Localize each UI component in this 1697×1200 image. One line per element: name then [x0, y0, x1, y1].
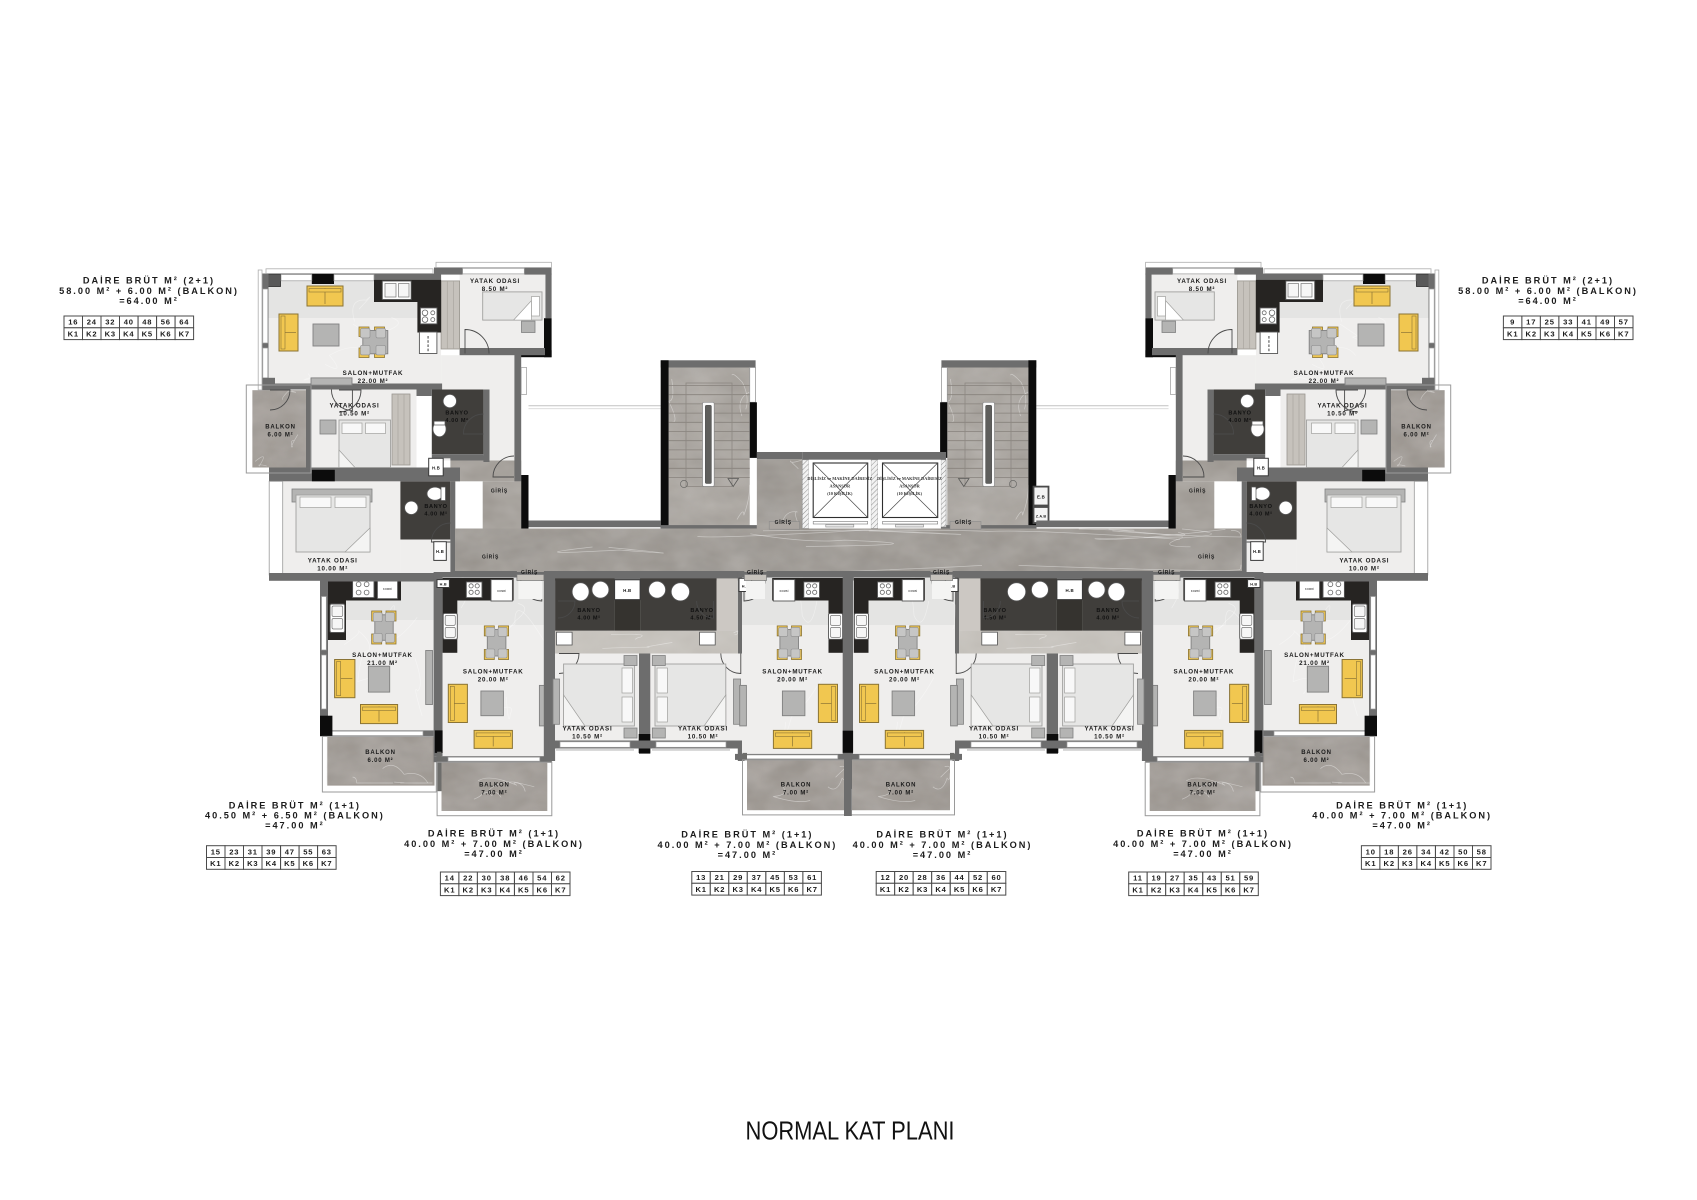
svg-text:4.00 M²: 4.00 M²	[424, 511, 447, 518]
svg-text:K2: K2	[1384, 859, 1395, 868]
svg-text:K2: K2	[714, 885, 725, 894]
svg-text:K5: K5	[284, 859, 295, 868]
svg-text:KOMBİ: KOMBİ	[1191, 590, 1200, 593]
svg-text:39: 39	[266, 847, 276, 856]
svg-text:SALON+MUTFAK: SALON+MUTFAK	[463, 669, 524, 676]
svg-text:NORMAL KAT PLANI: NORMAL KAT PLANI	[746, 1118, 955, 1146]
svg-text:40: 40	[124, 318, 134, 327]
svg-text:6.00 M²: 6.00 M²	[368, 757, 394, 764]
svg-text:10.50 M²: 10.50 M²	[339, 411, 370, 418]
svg-text:21.00 M²: 21.00 M²	[1299, 660, 1330, 667]
svg-text:GİRİŞ: GİRİŞ	[775, 519, 792, 526]
svg-text:58.00 M² + 6.00 M² (BALKON): 58.00 M² + 6.00 M² (BALKON)	[59, 286, 239, 296]
svg-text:=47.00 M²: =47.00 M²	[1173, 849, 1233, 859]
svg-text:K2: K2	[463, 885, 474, 894]
svg-text:36: 36	[936, 873, 946, 882]
svg-text:K1: K1	[444, 885, 455, 894]
svg-text:10.50 M²: 10.50 M²	[1094, 734, 1125, 741]
svg-text:DAİRE BRÜT M² (1+1): DAİRE BRÜT M² (1+1)	[1137, 829, 1269, 839]
svg-text:8.50 M²: 8.50 M²	[482, 286, 509, 293]
svg-text:32: 32	[105, 318, 115, 327]
svg-text:52: 52	[973, 873, 983, 882]
svg-text:DAİRE BRÜT M² (1+1): DAİRE BRÜT M² (1+1)	[876, 830, 1008, 840]
svg-text:37: 37	[752, 873, 762, 882]
svg-text:K5: K5	[954, 885, 965, 894]
svg-text:GİRİŞ: GİRİŞ	[747, 569, 764, 576]
svg-text:4.00 M²: 4.00 M²	[1249, 511, 1272, 518]
svg-text:BANYO: BANYO	[1228, 411, 1251, 417]
svg-text:K1: K1	[68, 329, 79, 338]
svg-text:26: 26	[1403, 847, 1413, 856]
svg-text:7.00 M²: 7.00 M²	[783, 790, 809, 797]
svg-text:KOMBİ: KOMBİ	[1305, 588, 1314, 591]
svg-text:23: 23	[229, 847, 239, 856]
svg-text:ASANSÖR: ASANSÖR	[830, 484, 851, 489]
svg-text:20: 20	[899, 873, 909, 882]
svg-text:10.00 M²: 10.00 M²	[1349, 566, 1380, 573]
svg-text:51: 51	[1225, 874, 1235, 883]
svg-text:47: 47	[285, 847, 295, 856]
svg-text:57: 57	[1619, 318, 1629, 327]
svg-text:BALKON: BALKON	[265, 425, 295, 431]
svg-text:K2: K2	[86, 329, 97, 338]
svg-text:16: 16	[68, 318, 78, 327]
svg-text:63: 63	[322, 847, 332, 856]
svg-text:BALKON: BALKON	[1301, 750, 1331, 756]
svg-text:K7: K7	[321, 859, 332, 868]
svg-text:K3: K3	[732, 885, 743, 894]
svg-text:18: 18	[1384, 847, 1394, 856]
svg-text:SALON+MUTFAK: SALON+MUTFAK	[352, 652, 413, 659]
svg-text:GİRİŞ: GİRİŞ	[933, 569, 950, 576]
svg-text:K5: K5	[1439, 859, 1450, 868]
svg-text:H.B: H.B	[1253, 549, 1261, 554]
svg-text:K4: K4	[266, 859, 277, 868]
svg-text:GİRİŞ: GİRİŞ	[482, 554, 499, 561]
svg-text:K2: K2	[898, 885, 909, 894]
svg-text:GİRİŞ: GİRİŞ	[1158, 569, 1175, 576]
svg-text:DAİRE BRÜT M² (2+1): DAİRE BRÜT M² (2+1)	[83, 276, 215, 286]
svg-text:K6: K6	[537, 885, 548, 894]
svg-text:K1: K1	[210, 859, 221, 868]
svg-text:KOMBİ: KOMBİ	[497, 590, 506, 593]
svg-text:K2: K2	[1526, 329, 1537, 338]
svg-text:=47.00 M²: =47.00 M²	[265, 821, 325, 831]
svg-text:20.00 M²: 20.00 M²	[1188, 677, 1219, 684]
svg-text:=47.00 M²: =47.00 M²	[718, 850, 778, 860]
svg-text:SALON+MUTFAK: SALON+MUTFAK	[343, 370, 404, 377]
svg-text:14: 14	[445, 874, 455, 883]
svg-text:DAİRE BRÜT M² (2+1): DAİRE BRÜT M² (2+1)	[1482, 276, 1614, 286]
svg-text:54: 54	[537, 874, 547, 883]
svg-text:8.50 M²: 8.50 M²	[1189, 286, 1216, 293]
svg-text:K4: K4	[123, 329, 134, 338]
svg-text:31: 31	[248, 847, 258, 856]
svg-text:K3: K3	[247, 859, 258, 868]
svg-text:H.B: H.B	[623, 588, 631, 593]
svg-text:60: 60	[991, 873, 1001, 882]
svg-text:YATAK ODASI: YATAK ODASI	[969, 726, 1019, 733]
svg-text:K3: K3	[105, 329, 116, 338]
svg-text:BANYO: BANYO	[424, 504, 447, 510]
svg-text:K3: K3	[481, 885, 492, 894]
svg-text:SALON+MUTFAK: SALON+MUTFAK	[1284, 652, 1345, 659]
svg-text:KOMBİ: KOMBİ	[383, 588, 392, 591]
svg-text:35: 35	[1188, 874, 1198, 883]
svg-text:46: 46	[519, 874, 529, 883]
svg-text:20.00 M²: 20.00 M²	[889, 677, 920, 684]
svg-text:K7: K7	[1476, 859, 1487, 868]
svg-text:6.00 M²: 6.00 M²	[1404, 432, 1430, 439]
svg-text:K4: K4	[1188, 885, 1199, 894]
svg-text:(10 KİŞİLİK): (10 KİŞİLİK)	[827, 491, 853, 496]
svg-text:41: 41	[1582, 318, 1592, 327]
svg-text:9: 9	[1510, 318, 1515, 327]
svg-text:K7: K7	[806, 885, 817, 894]
svg-text:34: 34	[1421, 847, 1431, 856]
svg-text:24: 24	[87, 318, 97, 327]
svg-text:GİRİŞ: GİRİŞ	[521, 569, 538, 576]
svg-text:17: 17	[1526, 318, 1536, 327]
svg-text:64: 64	[179, 318, 189, 327]
svg-text:27: 27	[1170, 874, 1180, 883]
svg-text:50: 50	[1458, 847, 1468, 856]
svg-text:=64.00 M²: =64.00 M²	[119, 296, 179, 306]
svg-text:10.00 M²: 10.00 M²	[317, 566, 348, 573]
svg-text:K4: K4	[1421, 859, 1432, 868]
svg-text:25: 25	[1545, 318, 1555, 327]
svg-text:BALKON: BALKON	[781, 783, 811, 789]
svg-text:40.00 M² + 7.00 M² (BALKON): 40.00 M² + 7.00 M² (BALKON)	[1312, 811, 1492, 821]
svg-text:K7: K7	[179, 329, 190, 338]
svg-text:GİRİŞ: GİRİŞ	[491, 488, 508, 495]
svg-text:10.50 M²: 10.50 M²	[688, 734, 719, 741]
svg-text:BANYO: BANYO	[577, 608, 600, 614]
svg-text:29: 29	[733, 873, 743, 882]
svg-text:K2: K2	[1151, 885, 1162, 894]
svg-text:7.00 M²: 7.00 M²	[481, 790, 507, 797]
svg-text:7.00 M²: 7.00 M²	[1190, 790, 1216, 797]
svg-text:K4: K4	[935, 885, 946, 894]
svg-text:K6: K6	[1458, 859, 1469, 868]
svg-text:ASANSÖR: ASANSÖR	[899, 484, 920, 489]
svg-text:K1: K1	[880, 885, 891, 894]
svg-text:KOMBİ: KOMBİ	[780, 590, 789, 593]
svg-text:K3: K3	[917, 885, 928, 894]
svg-text:13: 13	[696, 873, 706, 882]
svg-text:K3: K3	[1402, 859, 1413, 868]
svg-text:YATAK ODASI: YATAK ODASI	[470, 278, 520, 285]
svg-text:K6: K6	[788, 885, 799, 894]
svg-text:22: 22	[463, 874, 473, 883]
svg-text:10.50 M²: 10.50 M²	[1327, 411, 1358, 418]
svg-text:GİRİŞ: GİRİŞ	[1198, 554, 1215, 561]
svg-text:=47.00 M²: =47.00 M²	[913, 850, 973, 860]
svg-text:DAİRE BRÜT M² (1+1): DAİRE BRÜT M² (1+1)	[428, 829, 560, 839]
svg-text:K1: K1	[1507, 329, 1518, 338]
svg-text:YATAK ODASI: YATAK ODASI	[1339, 558, 1389, 565]
svg-text:40.00 M² + 7.00 M² (BALKON): 40.00 M² + 7.00 M² (BALKON)	[404, 839, 584, 849]
svg-text:DAİRE BRÜT M² (1+1): DAİRE BRÜT M² (1+1)	[681, 830, 813, 840]
svg-text:H.B: H.B	[440, 582, 447, 586]
svg-text:40.00 M² + 7.00 M² (BALKON): 40.00 M² + 7.00 M² (BALKON)	[1113, 839, 1293, 849]
svg-text:7.00 M²: 7.00 M²	[888, 790, 914, 797]
svg-text:SALON+MUTFAK: SALON+MUTFAK	[1173, 669, 1234, 676]
svg-text:42: 42	[1440, 847, 1450, 856]
svg-text:(10 KİŞİLİK): (10 KİŞİLİK)	[897, 491, 923, 496]
svg-text:K7: K7	[991, 885, 1002, 894]
svg-text:30: 30	[482, 874, 492, 883]
svg-text:YATAK ODASI: YATAK ODASI	[1085, 726, 1135, 733]
svg-text:BALKON: BALKON	[1187, 783, 1217, 789]
svg-text:38: 38	[500, 874, 510, 883]
svg-text:K3: K3	[1169, 885, 1180, 894]
svg-text:45: 45	[770, 873, 780, 882]
svg-text:10: 10	[1366, 847, 1376, 856]
svg-text:=64.00 M²: =64.00 M²	[1518, 296, 1578, 306]
svg-text:59: 59	[1244, 874, 1254, 883]
svg-text:22.00 M²: 22.00 M²	[358, 378, 389, 385]
svg-text:YATAK ODASI: YATAK ODASI	[1318, 403, 1368, 410]
svg-text:H.B: H.B	[1257, 466, 1265, 471]
svg-text:K3: K3	[1544, 329, 1555, 338]
svg-text:K5: K5	[769, 885, 780, 894]
svg-text:K4: K4	[751, 885, 762, 894]
svg-text:20.00 M²: 20.00 M²	[478, 677, 509, 684]
svg-text:SALON+MUTFAK: SALON+MUTFAK	[1294, 370, 1355, 377]
svg-text:BALKON: BALKON	[886, 783, 916, 789]
svg-text:K1: K1	[1132, 885, 1143, 894]
svg-text:20.00 M²: 20.00 M²	[777, 677, 808, 684]
svg-text:YATAK ODASI: YATAK ODASI	[1177, 278, 1227, 285]
svg-text:K5: K5	[142, 329, 153, 338]
svg-text:4.00 M²: 4.00 M²	[577, 615, 600, 622]
svg-text:H.B: H.B	[1250, 582, 1257, 586]
svg-text:DAİRE BRÜT M² (1+1): DAİRE BRÜT M² (1+1)	[229, 801, 361, 811]
svg-text:48: 48	[142, 318, 152, 327]
svg-text:BANYO: BANYO	[1249, 504, 1272, 510]
svg-text:GİRİŞ: GİRİŞ	[955, 519, 972, 526]
svg-text:SALON+MUTFAK: SALON+MUTFAK	[874, 669, 935, 676]
svg-text:40.00 M² + 7.00 M² (BALKON): 40.00 M² + 7.00 M² (BALKON)	[853, 840, 1033, 850]
svg-text:BALKON: BALKON	[365, 750, 395, 756]
svg-text:YATAK ODASI: YATAK ODASI	[330, 403, 380, 410]
svg-text:K1: K1	[1365, 859, 1376, 868]
svg-text:40.00 M² + 7.00 M² (BALKON): 40.00 M² + 7.00 M² (BALKON)	[657, 840, 837, 850]
svg-text:10.50 M²: 10.50 M²	[979, 734, 1010, 741]
svg-text:DİŞLİSİZ ve MAKİNE DAİRESİZ: DİŞLİSİZ ve MAKİNE DAİRESİZ	[877, 476, 942, 481]
svg-text:K5: K5	[1581, 329, 1592, 338]
svg-text:BANYO: BANYO	[1096, 608, 1119, 614]
svg-text:28: 28	[917, 873, 927, 882]
svg-text:DAİRE BRÜT M² (1+1): DAİRE BRÜT M² (1+1)	[1336, 801, 1468, 811]
svg-text:K5: K5	[518, 885, 529, 894]
svg-text:K1: K1	[695, 885, 706, 894]
svg-text:33: 33	[1563, 318, 1573, 327]
svg-text:22.00 M²: 22.00 M²	[1309, 378, 1340, 385]
svg-text:12: 12	[880, 873, 890, 882]
svg-text:H.B: H.B	[436, 549, 444, 554]
svg-text:56: 56	[161, 318, 171, 327]
svg-text:SALON+MUTFAK: SALON+MUTFAK	[762, 669, 823, 676]
svg-text:10.50 M²: 10.50 M²	[572, 734, 603, 741]
svg-text:44: 44	[954, 873, 964, 882]
svg-text:K6: K6	[303, 859, 314, 868]
svg-text:H.B: H.B	[432, 466, 440, 471]
svg-text:62: 62	[556, 874, 566, 883]
svg-text:K5: K5	[1206, 885, 1217, 894]
svg-text:BALKON: BALKON	[479, 783, 509, 789]
svg-text:K7: K7	[1243, 885, 1254, 894]
svg-text:40.50 M² + 6.50 M² (BALKON): 40.50 M² + 6.50 M² (BALKON)	[205, 811, 385, 821]
svg-text:6.00 M²: 6.00 M²	[268, 432, 294, 439]
svg-text:49: 49	[1600, 318, 1610, 327]
svg-text:21: 21	[715, 873, 725, 882]
svg-text:K4: K4	[1563, 329, 1574, 338]
svg-text:K2: K2	[229, 859, 240, 868]
svg-text:55: 55	[303, 847, 313, 856]
svg-text:E.B: E.B	[1037, 495, 1045, 500]
svg-text:YATAK ODASI: YATAK ODASI	[563, 726, 613, 733]
svg-text:K6: K6	[1600, 329, 1611, 338]
svg-text:K6: K6	[160, 329, 171, 338]
svg-text:YATAK ODASI: YATAK ODASI	[678, 726, 728, 733]
svg-text:4.00 M²: 4.00 M²	[1096, 615, 1119, 622]
svg-text:KOMBİ: KOMBİ	[908, 590, 917, 593]
svg-text:Z.A.B: Z.A.B	[1036, 515, 1047, 519]
svg-text:6.00 M²: 6.00 M²	[1304, 757, 1330, 764]
svg-text:K4: K4	[500, 885, 511, 894]
svg-text:BALKON: BALKON	[1401, 425, 1431, 431]
svg-text:11: 11	[1133, 874, 1143, 883]
svg-text:43: 43	[1207, 874, 1217, 883]
svg-text:21.00 M²: 21.00 M²	[367, 660, 398, 667]
svg-text:GİRİŞ: GİRİŞ	[1189, 488, 1206, 495]
svg-text:58: 58	[1477, 847, 1487, 856]
svg-text:K6: K6	[1225, 885, 1236, 894]
svg-text:K6: K6	[972, 885, 983, 894]
svg-text:=47.00 M²: =47.00 M²	[464, 849, 524, 859]
svg-text:4.00 M²: 4.00 M²	[1228, 417, 1251, 424]
svg-text:K7: K7	[555, 885, 566, 894]
svg-text:58.00 M² + 6.00 M² (BALKON): 58.00 M² + 6.00 M² (BALKON)	[1458, 286, 1638, 296]
svg-text:61: 61	[807, 873, 817, 882]
svg-text:H.B: H.B	[1065, 588, 1073, 593]
svg-text:=47.00 M²: =47.00 M²	[1372, 821, 1432, 831]
svg-text:BANYO: BANYO	[445, 411, 468, 417]
svg-text:K7: K7	[1618, 329, 1629, 338]
svg-text:DİŞLİSİZ ve MAKİNE DAİRESİZ: DİŞLİSİZ ve MAKİNE DAİRESİZ	[807, 476, 872, 481]
svg-text:YATAK ODASI: YATAK ODASI	[308, 558, 358, 565]
svg-text:19: 19	[1151, 874, 1161, 883]
svg-text:53: 53	[789, 873, 799, 882]
svg-text:15: 15	[211, 847, 221, 856]
svg-text:4.00 M²: 4.00 M²	[445, 417, 468, 424]
